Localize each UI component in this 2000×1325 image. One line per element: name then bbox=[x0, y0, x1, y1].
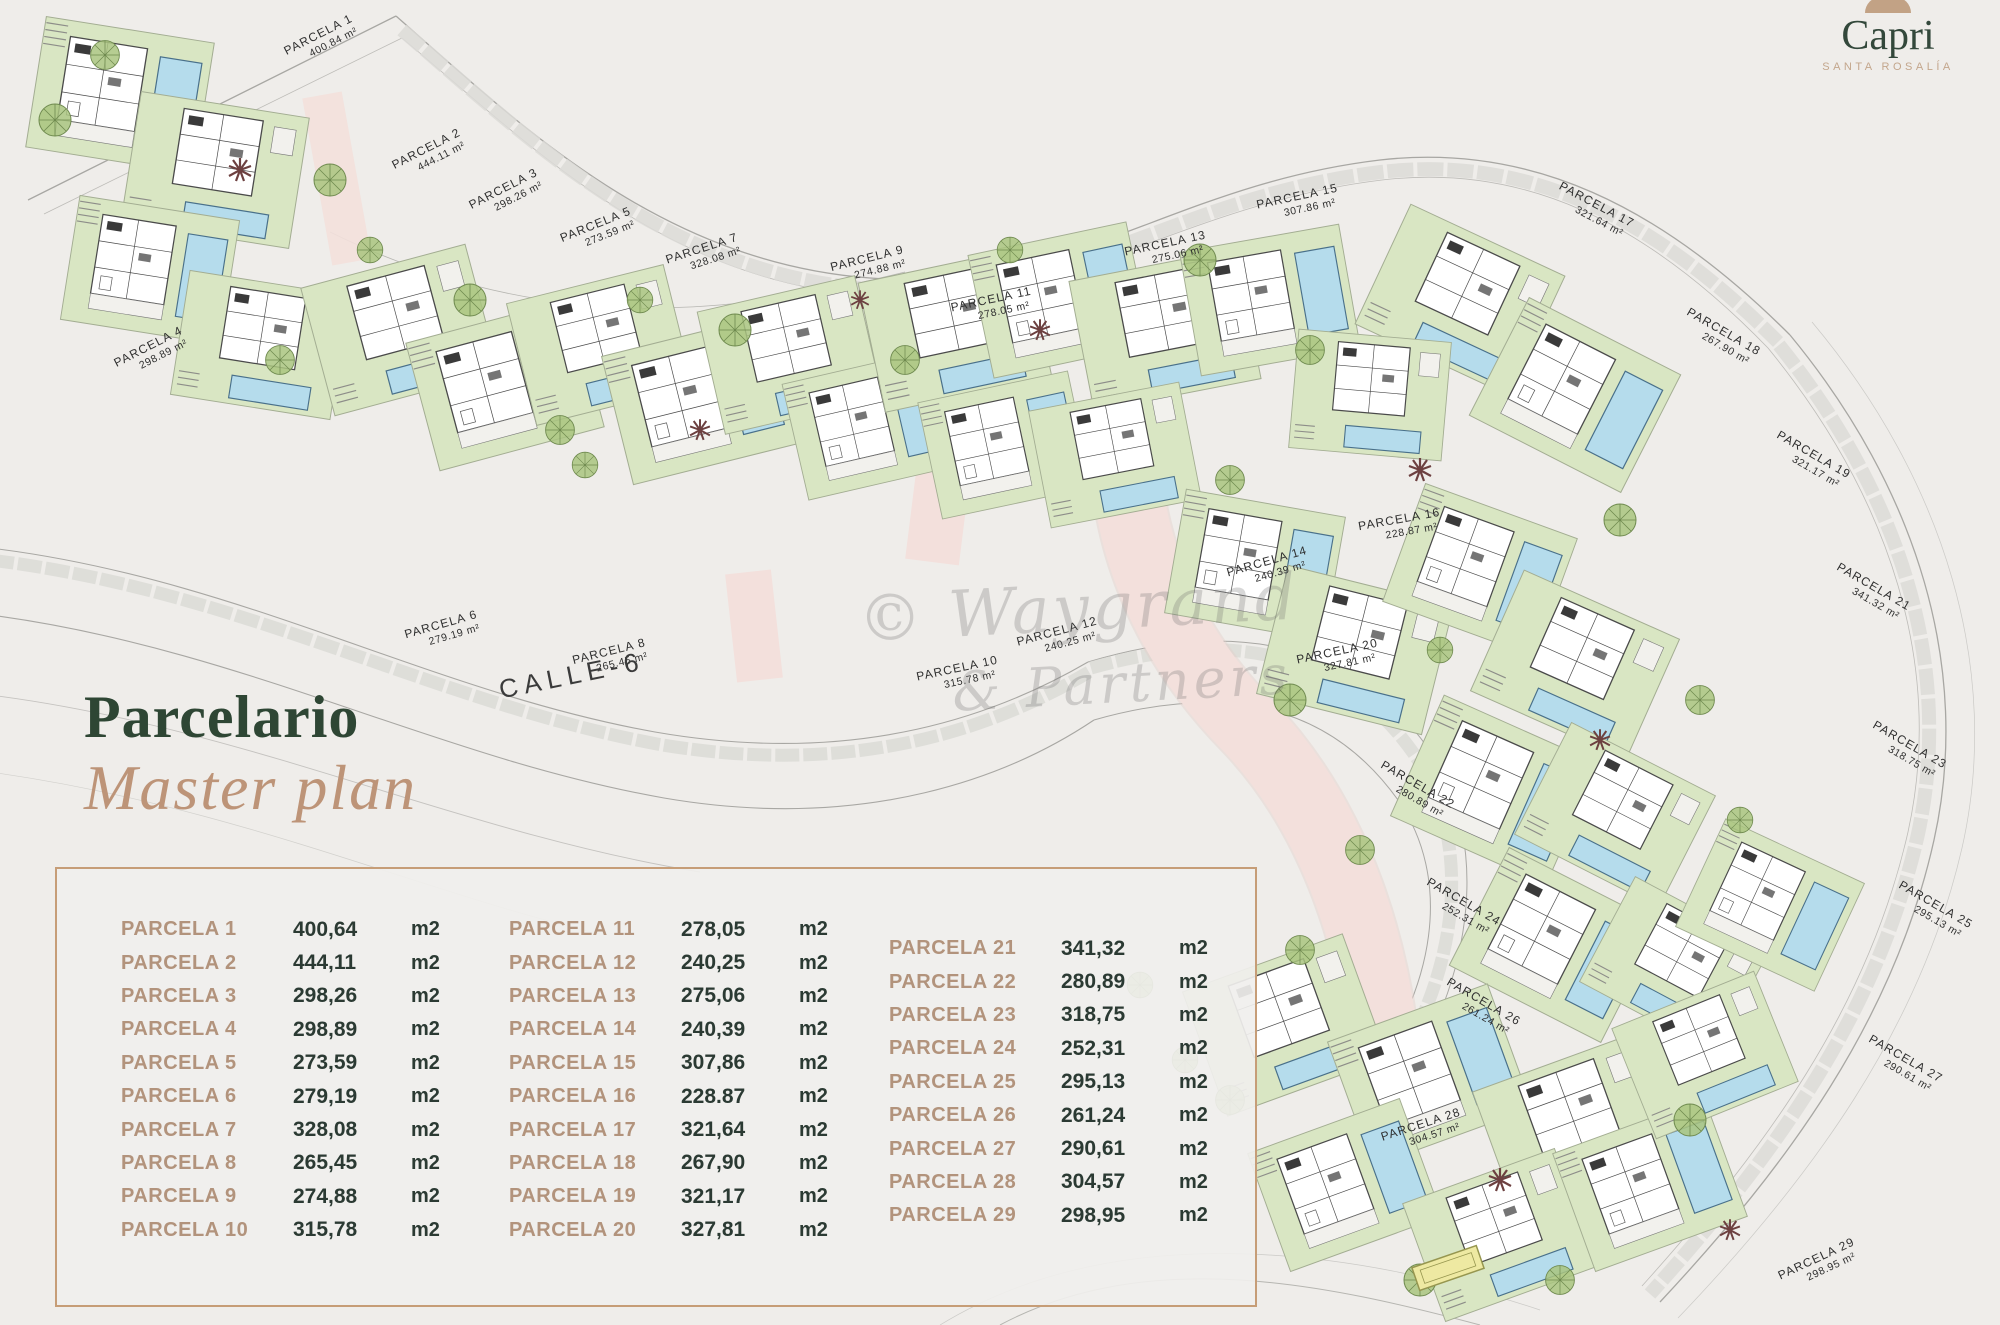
parcel-label: PARCELA 15 bbox=[509, 1052, 681, 1075]
unit-label: m2 bbox=[411, 985, 461, 1008]
parcel-label: PARCELA 9 bbox=[121, 1185, 293, 1208]
table-row: PARCELA 27290,61m2 bbox=[889, 1132, 1229, 1165]
plan-parcel-label: PARCELA 5273.59 m² bbox=[558, 204, 638, 257]
parcel-area-value: 278,05 bbox=[681, 918, 799, 942]
unit-label: m2 bbox=[799, 918, 849, 941]
table-row: PARCELA 3298,26m2 bbox=[121, 980, 461, 1013]
page-title: Parcelario bbox=[84, 686, 417, 749]
unit-label: m2 bbox=[411, 1018, 461, 1041]
table-row: PARCELA 12240,25m2 bbox=[509, 946, 849, 979]
plan-parcel-label: PARCELA 23318.75 m² bbox=[1864, 718, 1950, 783]
parcel-area-value: 400,64 bbox=[293, 918, 411, 942]
unit-label: m2 bbox=[1179, 1071, 1229, 1094]
parcel-area-value: 298,26 bbox=[293, 984, 411, 1008]
parcel-area-value: 321,17 bbox=[681, 1185, 799, 1209]
table-column-1: PARCELA 1400,64m2PARCELA 2444,11m2PARCEL… bbox=[121, 913, 461, 1247]
unit-label: m2 bbox=[1179, 1204, 1229, 1227]
table-row: PARCELA 29298,95m2 bbox=[889, 1199, 1229, 1232]
unit-label: m2 bbox=[799, 1052, 849, 1075]
arch-icon bbox=[1865, 0, 1911, 13]
table-row: PARCELA 8265,45m2 bbox=[121, 1147, 461, 1180]
table-row: PARCELA 13275,06m2 bbox=[509, 980, 849, 1013]
table-row: PARCELA 18267,90m2 bbox=[509, 1147, 849, 1180]
parcel-area-value: 444,11 bbox=[293, 951, 411, 975]
unit-label: m2 bbox=[411, 1152, 461, 1175]
table-row: PARCELA 28304,57m2 bbox=[889, 1166, 1229, 1199]
parcel-label: PARCELA 3 bbox=[121, 985, 293, 1008]
table-row: PARCELA 1400,64m2 bbox=[121, 913, 461, 946]
parcel-label: PARCELA 21 bbox=[889, 937, 1061, 960]
table-row: PARCELA 21341,32m2 bbox=[889, 932, 1229, 965]
parcel-area-value: 267,90 bbox=[681, 1151, 799, 1175]
table-row: PARCELA 5273,59m2 bbox=[121, 1047, 461, 1080]
parcel-label: PARCELA 27 bbox=[889, 1138, 1061, 1161]
parcel-area-value: 279,19 bbox=[293, 1085, 411, 1109]
parcel-area-value: 280,89 bbox=[1061, 970, 1179, 994]
table-row: PARCELA 23318,75m2 bbox=[889, 999, 1229, 1032]
parcel-label: PARCELA 7 bbox=[121, 1119, 293, 1142]
plan-parcel-label: PARCELA 2444.11 m² bbox=[389, 125, 468, 183]
brand-logo: Capri SANTA ROSALÍA bbox=[1798, 0, 1978, 73]
unit-label: m2 bbox=[411, 918, 461, 941]
parcel-area-value: 295,13 bbox=[1061, 1070, 1179, 1094]
parcel-area-value: 240,39 bbox=[681, 1018, 799, 1042]
parcel-area-value: 341,32 bbox=[1061, 937, 1179, 961]
plan-parcel-label: PARCELA 6279.19 m² bbox=[403, 607, 483, 654]
unit-label: m2 bbox=[411, 1219, 461, 1242]
unit-label: m2 bbox=[1179, 1004, 1229, 1027]
parcel-area-value: 261,24 bbox=[1061, 1104, 1179, 1128]
parcel-label: PARCELA 5 bbox=[121, 1052, 293, 1075]
plan-parcel-label: PARCELA 15307.86 m² bbox=[1255, 181, 1342, 225]
parcel-label: PARCELA 25 bbox=[889, 1071, 1061, 1094]
parcel-label: PARCELA 1 bbox=[121, 918, 293, 941]
parcel-area-value: 315,78 bbox=[293, 1218, 411, 1242]
parcel-area-value: 307,86 bbox=[681, 1051, 799, 1075]
table-row: PARCELA 20327,81m2 bbox=[509, 1214, 849, 1247]
parcel-area-value: 318,75 bbox=[1061, 1003, 1179, 1027]
unit-label: m2 bbox=[411, 1052, 461, 1075]
parcel-label: PARCELA 17 bbox=[509, 1119, 681, 1142]
parcel-label: PARCELA 6 bbox=[121, 1085, 293, 1108]
parcel-area-value: 240,25 bbox=[681, 951, 799, 975]
plan-parcel-label: PARCELA 29298.95 m² bbox=[1776, 1234, 1863, 1294]
parcel-label: PARCELA 13 bbox=[509, 985, 681, 1008]
unit-label: m2 bbox=[799, 1085, 849, 1108]
parcel-label: PARCELA 24 bbox=[889, 1037, 1061, 1060]
parcel-label: PARCELA 22 bbox=[889, 971, 1061, 994]
parcel-area-value: 265,45 bbox=[293, 1151, 411, 1175]
table-column-3: PARCELA 21341,32m2PARCELA 22280,89m2PARC… bbox=[889, 932, 1229, 1233]
table-row: PARCELA 9274,88m2 bbox=[121, 1180, 461, 1213]
parcel-label: PARCELA 11 bbox=[509, 918, 681, 941]
plan-parcel-label: PARCELA 27290.61 m² bbox=[1860, 1032, 1946, 1097]
table-row: PARCELA 26261,24m2 bbox=[889, 1099, 1229, 1132]
table-row: PARCELA 19321,17m2 bbox=[509, 1180, 849, 1213]
unit-label: m2 bbox=[1179, 937, 1229, 960]
table-row: PARCELA 22280,89m2 bbox=[889, 965, 1229, 998]
unit-label: m2 bbox=[799, 952, 849, 975]
table-column-2: PARCELA 11278,05m2PARCELA 12240,25m2PARC… bbox=[509, 913, 849, 1247]
unit-label: m2 bbox=[799, 1219, 849, 1242]
parcel-area-value: 275,06 bbox=[681, 984, 799, 1008]
parcel-label: PARCELA 4 bbox=[121, 1018, 293, 1041]
table-row: PARCELA 16228.87m2 bbox=[509, 1080, 849, 1113]
parcel-area-value: 328,08 bbox=[293, 1118, 411, 1142]
parcel-area-value: 321,64 bbox=[681, 1118, 799, 1142]
parcel-label: PARCELA 16 bbox=[509, 1085, 681, 1108]
parcel-label: PARCELA 23 bbox=[889, 1004, 1061, 1027]
table-row: PARCELA 11278,05m2 bbox=[509, 913, 849, 946]
parcel-area-value: 304,57 bbox=[1061, 1170, 1179, 1194]
unit-label: m2 bbox=[1179, 1138, 1229, 1161]
parcel-label: PARCELA 28 bbox=[889, 1171, 1061, 1194]
parcel-label: PARCELA 10 bbox=[121, 1219, 293, 1242]
parcel-label: PARCELA 18 bbox=[509, 1152, 681, 1175]
page-subtitle: Master plan bbox=[84, 751, 417, 825]
parcel-label: PARCELA 14 bbox=[509, 1018, 681, 1041]
parcel-area-value: 290,61 bbox=[1061, 1137, 1179, 1161]
table-row: PARCELA 24252,31m2 bbox=[889, 1032, 1229, 1065]
table-row: PARCELA 17321,64m2 bbox=[509, 1113, 849, 1146]
page-heading: Parcelario Master plan bbox=[84, 686, 417, 825]
unit-label: m2 bbox=[1179, 1104, 1229, 1127]
parcel-area-table: PARCELA 1400,64m2PARCELA 2444,11m2PARCEL… bbox=[55, 867, 1257, 1307]
unit-label: m2 bbox=[799, 1018, 849, 1041]
unit-label: m2 bbox=[799, 985, 849, 1008]
parcel-area-value: 252,31 bbox=[1061, 1037, 1179, 1061]
table-row: PARCELA 4298,89m2 bbox=[121, 1013, 461, 1046]
unit-label: m2 bbox=[411, 1185, 461, 1208]
plan-parcel-label: PARCELA 1400.84 m² bbox=[281, 11, 360, 69]
parcel-area-value: 228.87 bbox=[681, 1085, 799, 1109]
parcel-area-value: 327,81 bbox=[681, 1218, 799, 1242]
unit-label: m2 bbox=[799, 1185, 849, 1208]
unit-label: m2 bbox=[1179, 971, 1229, 994]
parcel-area-value: 298,89 bbox=[293, 1018, 411, 1042]
table-row: PARCELA 2444,11m2 bbox=[121, 946, 461, 979]
table-row: PARCELA 6279,19m2 bbox=[121, 1080, 461, 1113]
parcel-label: PARCELA 26 bbox=[889, 1104, 1061, 1127]
table-row: PARCELA 7328,08m2 bbox=[121, 1113, 461, 1146]
plan-parcel-label: PARCELA 3298.26 m² bbox=[466, 165, 545, 223]
parcel-label: PARCELA 29 bbox=[889, 1204, 1061, 1227]
parcel-label: PARCELA 8 bbox=[121, 1152, 293, 1175]
parcel-area-value: 298,95 bbox=[1061, 1204, 1179, 1228]
plan-parcel-label: PARCELA 17321.64 m² bbox=[1551, 179, 1637, 242]
unit-label: m2 bbox=[799, 1119, 849, 1142]
table-row: PARCELA 15307,86m2 bbox=[509, 1047, 849, 1080]
brand-name: Capri bbox=[1798, 15, 1978, 57]
unit-label: m2 bbox=[411, 1085, 461, 1108]
parcel-label: PARCELA 12 bbox=[509, 952, 681, 975]
parcel-label: PARCELA 20 bbox=[509, 1219, 681, 1242]
unit-label: m2 bbox=[411, 952, 461, 975]
unit-label: m2 bbox=[1179, 1171, 1229, 1194]
table-row: PARCELA 10315,78m2 bbox=[121, 1214, 461, 1247]
master-plan-page: PARCELA 1400.84 m²PARCELA 2444.11 m²PARC… bbox=[0, 0, 2000, 1325]
table-row: PARCELA 14240,39m2 bbox=[509, 1013, 849, 1046]
parcel-area-value: 273,59 bbox=[293, 1051, 411, 1075]
unit-label: m2 bbox=[799, 1152, 849, 1175]
parcel-label: PARCELA 2 bbox=[121, 952, 293, 975]
brand-subtitle: SANTA ROSALÍA bbox=[1798, 61, 1978, 73]
unit-label: m2 bbox=[411, 1119, 461, 1142]
parcel-area-value: 274,88 bbox=[293, 1185, 411, 1209]
table-row: PARCELA 25295,13m2 bbox=[889, 1066, 1229, 1099]
parcel-label: PARCELA 19 bbox=[509, 1185, 681, 1208]
unit-label: m2 bbox=[1179, 1037, 1229, 1060]
